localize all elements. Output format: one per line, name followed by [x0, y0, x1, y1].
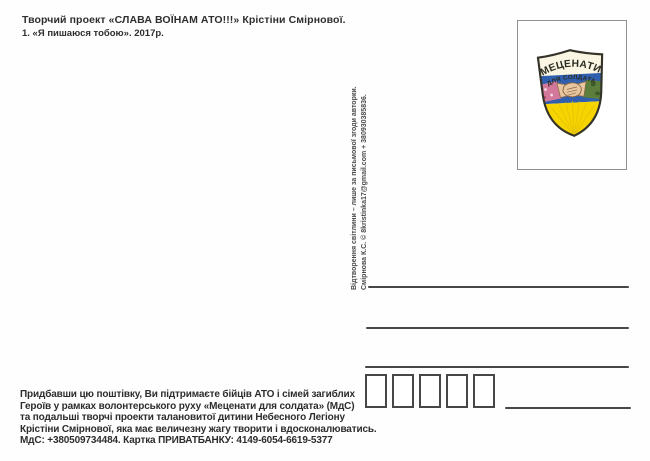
- support-note-line: Героїв у рамках волонтерського руху «Мец…: [20, 401, 410, 413]
- postal-code-box: [419, 374, 441, 408]
- support-note: Придбавши цю поштівку, Ви підтримаєте бі…: [20, 389, 410, 447]
- postal-code-line: [505, 407, 631, 409]
- photo-credit-vertical: Відтворення світлини – лише за письмової…: [350, 54, 369, 290]
- title-block: Творчий проект «СЛАВА ВОЇНАМ АТО!!!» Крі…: [22, 14, 346, 39]
- support-note-line: та подальші творчі проекти талановитої д…: [20, 412, 410, 424]
- charity-emblem-icon: МЕЦЕНАТИ ДЛЯ СОЛДАТА: [535, 46, 609, 140]
- address-line-1: [368, 286, 629, 288]
- series-caption: 1. «Я пишаюся тобою». 2017р.: [22, 28, 346, 39]
- support-note-line: МдС: +380509734484. Картка ПРИВАТБАНКУ: …: [20, 435, 410, 447]
- postal-code-box: [473, 374, 495, 408]
- address-line-3: [365, 366, 629, 368]
- photo-credit-line2: Смірнова К.С. © 8kristinka17@gmail.com +…: [360, 54, 370, 290]
- postal-code-box: [446, 374, 468, 408]
- postcard-back: Творчий проект «СЛАВА ВОЇНАМ АТО!!!» Крі…: [0, 0, 650, 461]
- support-note-line: Придбавши цю поштівку, Ви підтримаєте бі…: [20, 389, 410, 401]
- photo-credit-line1: Відтворення світлини – лише за письмової…: [350, 54, 360, 290]
- project-title: Творчий проект «СЛАВА ВОЇНАМ АТО!!!» Крі…: [22, 14, 346, 26]
- support-note-line: Крістіни Смірнової, яка має величезну жа…: [20, 424, 410, 436]
- stamp-box: МЕЦЕНАТИ ДЛЯ СОЛДАТА: [517, 20, 627, 170]
- address-line-2: [366, 327, 629, 329]
